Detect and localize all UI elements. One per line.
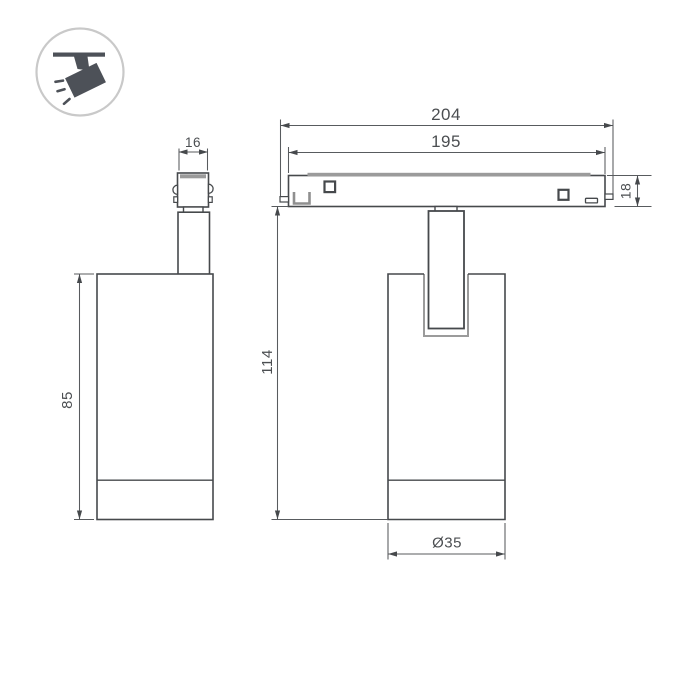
front-view: 204 195 18 xyxy=(259,105,652,560)
dim85-extension-lines xyxy=(74,274,94,520)
dim16-arrow-left xyxy=(179,149,188,154)
side-adapter-contact-strip xyxy=(180,174,206,178)
dim85-label: 85 xyxy=(59,391,76,409)
front-track-slot xyxy=(586,198,598,203)
side-arm xyxy=(178,212,210,274)
side-view: 16 85 xyxy=(59,135,213,520)
dim16-arrow-right xyxy=(199,149,208,154)
dimension-body-diameter: Ø35 xyxy=(388,523,505,560)
icon-ceiling-bar xyxy=(53,53,105,57)
drawing-canvas: 16 85 xyxy=(0,0,690,690)
front-track-top-strip xyxy=(308,173,591,176)
side-adapter-right-tab xyxy=(208,197,212,203)
dim204-label: 204 xyxy=(431,105,461,124)
dim35-arrow-right xyxy=(496,551,505,556)
front-track-right-window xyxy=(559,190,569,200)
side-adapter-left-tab xyxy=(174,197,178,203)
dim85-arrow-bottom xyxy=(77,511,82,520)
front-track-left-window xyxy=(325,182,336,193)
dim195-arrow-right xyxy=(596,150,605,155)
side-adapter-right-knob xyxy=(209,184,214,193)
side-adapter-left-knob xyxy=(173,185,178,194)
dim195-label: 195 xyxy=(431,132,461,151)
dim195-arrow-left xyxy=(289,150,298,155)
dimension-track-height: 18 xyxy=(607,176,652,207)
front-track-left-tab xyxy=(280,197,289,202)
dim18-label: 18 xyxy=(618,183,634,200)
dim204-arrow-right xyxy=(604,123,613,128)
dim204-arrow-left xyxy=(281,123,290,128)
dim114-arrow-top xyxy=(275,207,280,216)
icon-light-ray-1 xyxy=(56,81,64,82)
dim18-arrow-bottom xyxy=(635,198,640,207)
dim35-arrow-left xyxy=(388,551,397,556)
dimension-track-inner: 195 xyxy=(289,132,606,174)
dim114-extension-lines xyxy=(272,207,389,520)
dimension-body-height: 85 xyxy=(59,274,94,520)
drawing-page: 16 85 xyxy=(0,0,690,690)
dim35-label: Ø35 xyxy=(432,535,462,552)
front-arm xyxy=(429,211,465,329)
dim85-arrow-top xyxy=(77,274,82,283)
product-type-icon xyxy=(37,29,124,116)
dim114-label: 114 xyxy=(259,349,276,374)
dim195-extension-lines xyxy=(289,147,606,174)
dim16-label: 16 xyxy=(185,135,201,150)
dimension-adapter-width: 16 xyxy=(179,135,209,171)
side-lamp-body xyxy=(97,274,213,520)
dim114-arrow-bottom xyxy=(275,511,280,520)
front-track-right-tab xyxy=(605,194,613,199)
dim18-arrow-top xyxy=(635,176,640,185)
dimension-overall-height: 114 xyxy=(259,207,388,520)
